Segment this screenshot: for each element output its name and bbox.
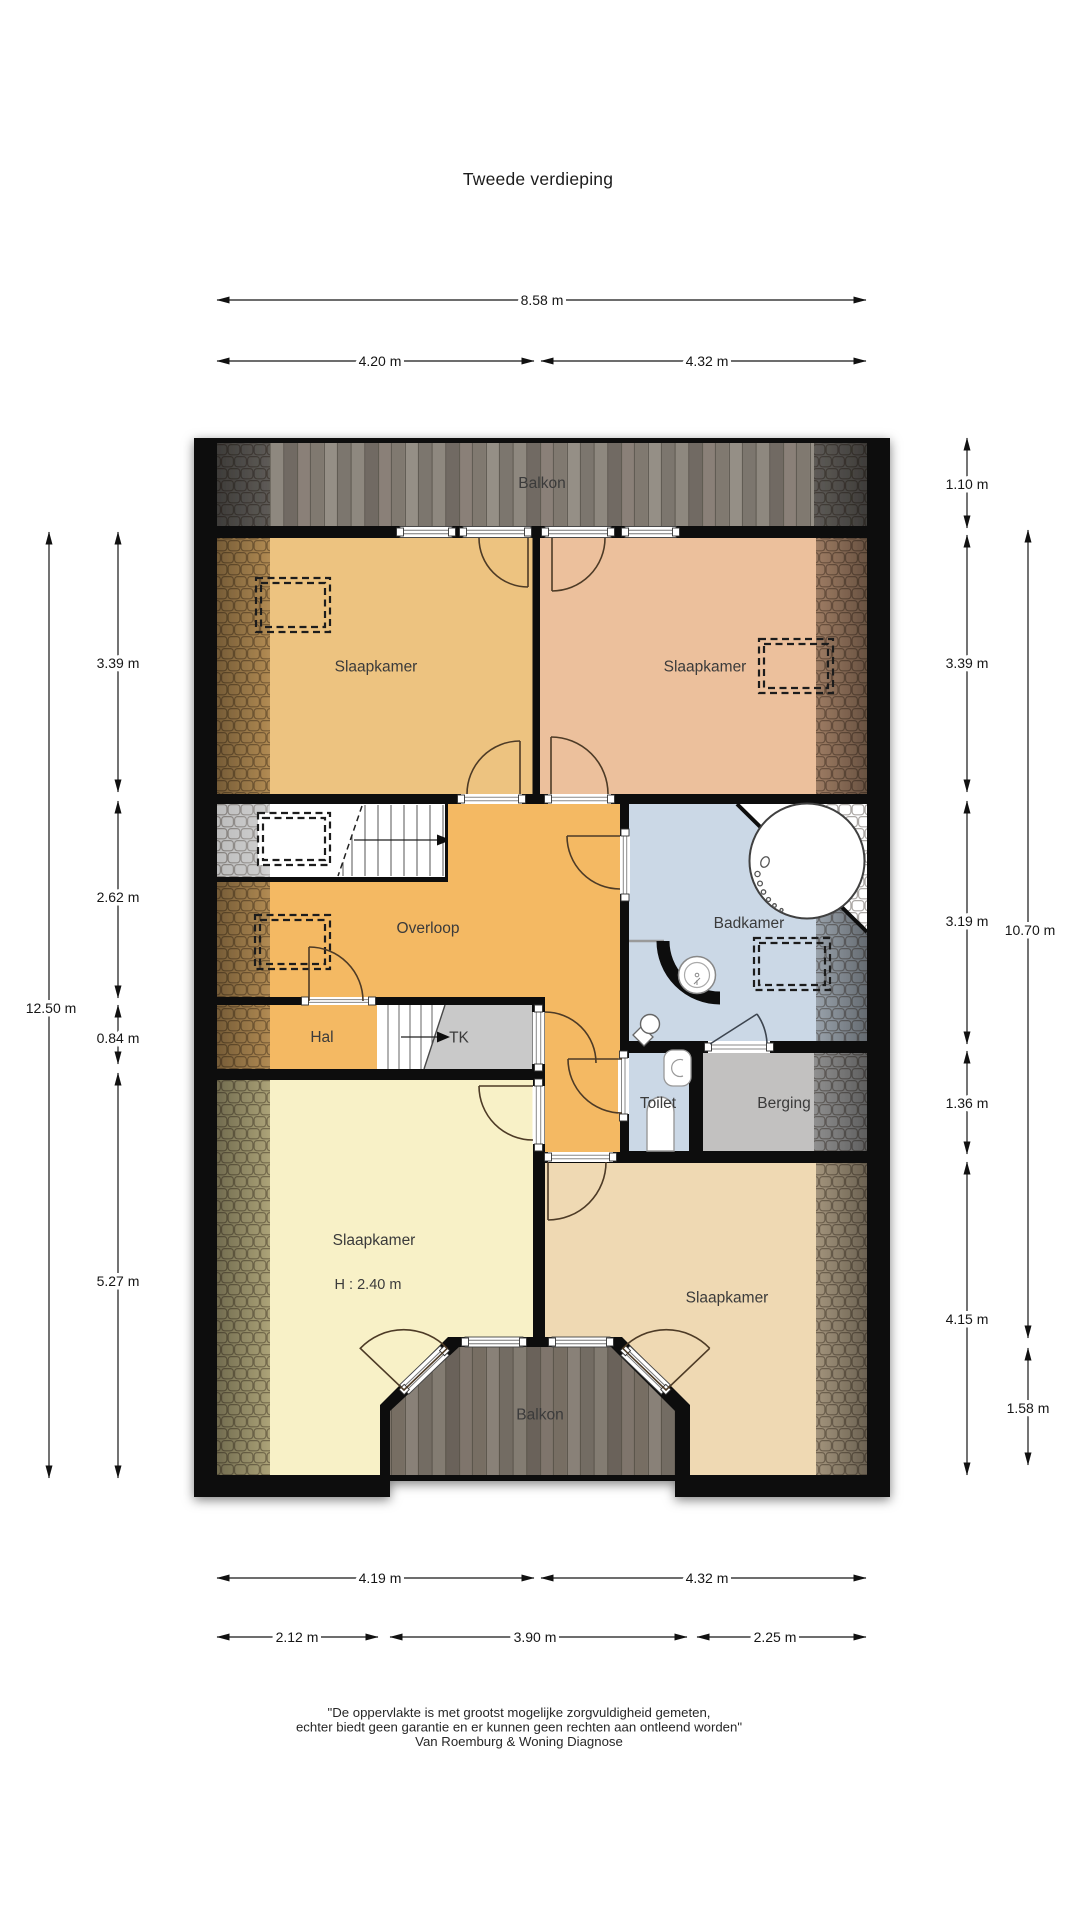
svg-text:5.27 m: 5.27 m — [97, 1273, 140, 1289]
svg-text:Berging: Berging — [757, 1095, 810, 1112]
svg-text:Slaapkamer: Slaapkamer — [335, 659, 418, 676]
svg-text:4.19 m: 4.19 m — [359, 1570, 402, 1586]
svg-text:4.15 m: 4.15 m — [946, 1311, 989, 1327]
svg-text:2.25 m: 2.25 m — [754, 1629, 797, 1645]
svg-text:Slaapkamer: Slaapkamer — [333, 1232, 416, 1249]
svg-text:echter biedt geen garantie en: echter biedt geen garantie en er kunnen … — [296, 1720, 742, 1735]
svg-text:2.12 m: 2.12 m — [276, 1629, 319, 1645]
svg-text:4.32 m: 4.32 m — [686, 1570, 729, 1586]
svg-text:Toilet: Toilet — [640, 1095, 677, 1112]
svg-text:2.62 m: 2.62 m — [97, 889, 140, 905]
svg-text:3.90 m: 3.90 m — [514, 1629, 557, 1645]
svg-text:4.20 m: 4.20 m — [359, 353, 402, 369]
svg-text:4.32 m: 4.32 m — [686, 353, 729, 369]
svg-text:0.84 m: 0.84 m — [97, 1030, 140, 1046]
svg-text:1.58 m: 1.58 m — [1007, 1400, 1050, 1416]
svg-text:3.19 m: 3.19 m — [946, 913, 989, 929]
svg-text:Balkon: Balkon — [516, 1407, 563, 1424]
svg-text:Overloop: Overloop — [397, 920, 460, 937]
svg-text:Badkamer: Badkamer — [714, 915, 785, 932]
svg-text:10.70 m: 10.70 m — [1005, 922, 1056, 938]
svg-text:Van Roemburg & Woning Diagnose: Van Roemburg & Woning Diagnose — [415, 1734, 623, 1749]
svg-text:12.50 m: 12.50 m — [26, 1000, 77, 1016]
svg-text:8.58 m: 8.58 m — [521, 292, 564, 308]
svg-text:Tweede verdieping: Tweede verdieping — [463, 169, 613, 189]
svg-text:Slaapkamer: Slaapkamer — [686, 1290, 769, 1307]
svg-text:H : 2.40 m: H : 2.40 m — [335, 1277, 402, 1293]
svg-text:Hal: Hal — [310, 1029, 333, 1046]
svg-text:"De oppervlakte is met grootst: "De oppervlakte is met grootst mogelijke… — [328, 1705, 711, 1720]
svg-text:TK: TK — [449, 1030, 469, 1047]
svg-text:3.39 m: 3.39 m — [97, 655, 140, 671]
svg-text:3.39 m: 3.39 m — [946, 655, 989, 671]
svg-text:1.36 m: 1.36 m — [946, 1095, 989, 1111]
svg-text:Balkon: Balkon — [518, 475, 565, 492]
svg-text:1.10 m: 1.10 m — [946, 476, 989, 492]
svg-text:Slaapkamer: Slaapkamer — [664, 659, 747, 676]
